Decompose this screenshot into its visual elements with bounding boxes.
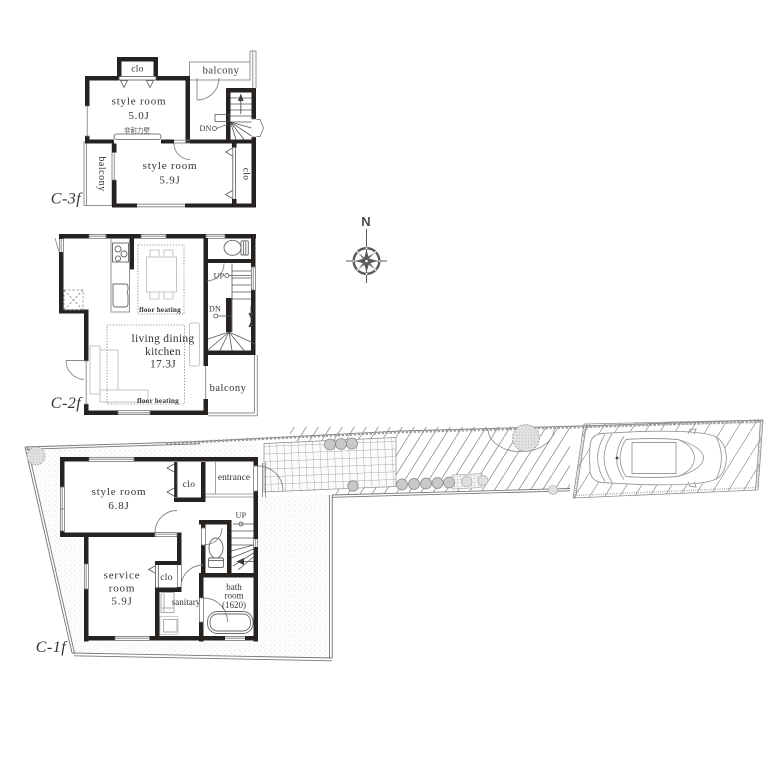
svg-text:clo: clo [131,65,144,75]
svg-text:entrance: entrance [218,473,250,483]
svg-text:service: service [104,570,141,582]
svg-text:C-3f: C-3f [51,191,84,208]
svg-text:sanitary: sanitary [172,597,201,607]
svg-text:UP: UP [236,511,247,520]
svg-text:balcony: balcony [203,66,240,77]
svg-text:5.0J: 5.0J [128,110,149,122]
svg-text:living dining: living dining [131,333,194,345]
svg-text:clo: clo [183,480,196,490]
svg-text:style room: style room [143,160,198,172]
svg-text:C-2f: C-2f [51,395,84,412]
svg-text:floor heating: floor heating [139,306,181,314]
svg-text:DN: DN [200,124,212,133]
svg-text:C-1f: C-1f [36,639,69,656]
svg-text:5.9J: 5.9J [111,596,132,608]
svg-text:(1620): (1620) [222,600,246,610]
svg-text:clo: clo [241,168,251,181]
svg-text:room: room [109,583,135,595]
svg-text:balcony: balcony [210,383,247,394]
svg-text:17.3J: 17.3J [150,359,176,371]
svg-text:style room: style room [112,96,167,108]
svg-text:balcony: balcony [96,156,107,191]
svg-text:style room: style room [92,486,147,498]
svg-text:room: room [225,591,244,601]
svg-text:floor heating: floor heating [137,397,179,405]
svg-text:clo: clo [160,573,173,583]
svg-text:非耐力壁: 非耐力壁 [124,126,151,135]
svg-text:5.9J: 5.9J [159,175,180,187]
svg-text:N: N [361,214,370,229]
svg-text:kitchen: kitchen [145,346,181,358]
svg-text:6.8J: 6.8J [108,500,129,512]
svg-text:DN: DN [209,305,221,314]
svg-text:UP: UP [214,272,225,281]
